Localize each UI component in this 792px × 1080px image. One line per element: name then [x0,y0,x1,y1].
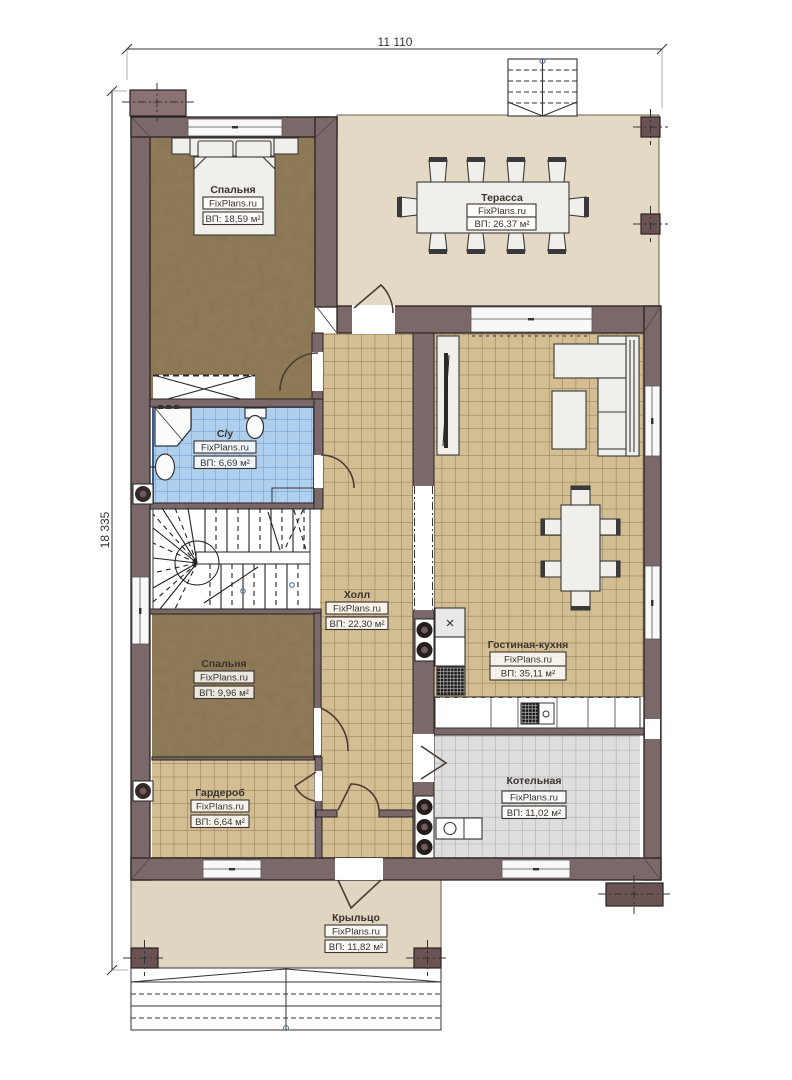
svg-text:ВП: 6,69 м²: ВП: 6,69 м² [200,458,251,469]
svg-text:FixPlans.ru: FixPlans.ru [332,927,380,938]
svg-text:18 335: 18 335 [98,511,112,548]
svg-text:FixPlans.ru: FixPlans.ru [478,206,526,217]
svg-text:FixPlans.ru: FixPlans.ru [200,673,248,684]
svg-text:FixPlans.ru: FixPlans.ru [504,655,552,666]
svg-text:Котельная: Котельная [507,775,562,787]
svg-text:FixPlans.ru: FixPlans.ru [209,199,257,210]
svg-text:Спальня: Спальня [210,184,255,196]
svg-text:FixPlans.ru: FixPlans.ru [333,604,381,615]
svg-text:Гардероб: Гардероб [195,787,245,799]
svg-text:С/у: С/у [217,428,234,440]
svg-text:Крыльцо: Крыльцо [332,912,380,924]
svg-text:ВП: 9,96 м²: ВП: 9,96 м² [199,688,250,699]
svg-text:ВП: 22,30 м²: ВП: 22,30 м² [329,619,385,630]
svg-text:FixPlans.ru: FixPlans.ru [196,802,244,813]
svg-text:FixPlans.ru: FixPlans.ru [201,443,249,454]
svg-text:ВП: 35,11 м²: ВП: 35,11 м² [501,669,556,680]
svg-text:Холл: Холл [344,589,370,601]
svg-text:Терасса: Терасса [481,192,523,204]
svg-text:Спальня: Спальня [201,658,246,670]
svg-text:11 110: 11 110 [378,35,413,49]
svg-text:ВП: 6,64 м²: ВП: 6,64 м² [195,817,246,828]
svg-text:ВП: 11,02 м²: ВП: 11,02 м² [507,808,562,819]
svg-text:ВП: 26,37 м²: ВП: 26,37 м² [474,219,530,230]
svg-text:ВП: 18,59 м²: ВП: 18,59 м² [205,214,261,225]
svg-text:ВП: 11,82 м²: ВП: 11,82 м² [329,942,384,953]
svg-text:Гостиная-кухня: Гостиная-кухня [488,639,568,651]
svg-text:FixPlans.ru: FixPlans.ru [510,793,558,804]
